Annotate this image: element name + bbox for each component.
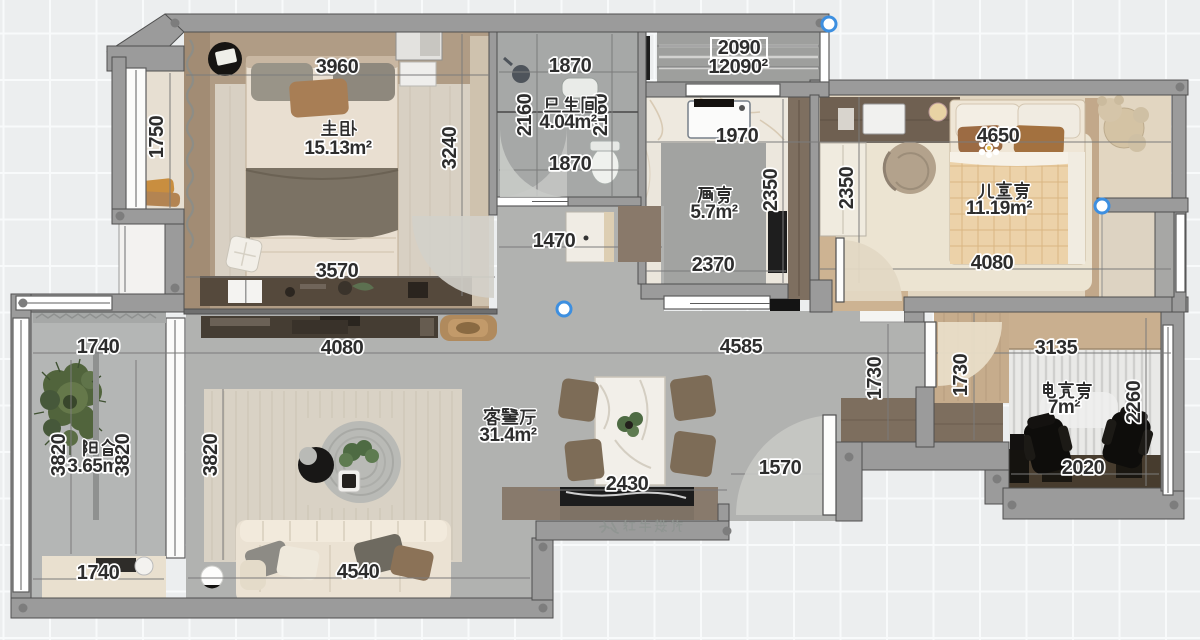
- svg-text:12090²: 12090²: [708, 56, 768, 78]
- svg-text:3570: 3570: [316, 260, 359, 282]
- svg-text:2020: 2020: [1062, 457, 1105, 479]
- svg-text:5.7m²: 5.7m²: [690, 202, 737, 223]
- svg-text:2260: 2260: [1123, 380, 1145, 423]
- svg-text:1740: 1740: [77, 562, 120, 584]
- svg-text:31.4m²: 31.4m²: [479, 425, 536, 446]
- svg-text:4080: 4080: [321, 337, 364, 359]
- svg-text:3135: 3135: [1035, 337, 1078, 359]
- svg-text:1730: 1730: [950, 353, 972, 396]
- svg-text:1870: 1870: [549, 55, 592, 77]
- svg-text:1740: 1740: [77, 336, 120, 358]
- svg-text:3960: 3960: [316, 56, 359, 78]
- svg-text:2430: 2430: [606, 473, 649, 495]
- svg-text:1870: 1870: [549, 153, 592, 175]
- svg-text:3240: 3240: [439, 126, 461, 169]
- svg-text:4080: 4080: [971, 252, 1014, 274]
- svg-text:1570: 1570: [759, 457, 802, 479]
- svg-text:1730: 1730: [864, 356, 886, 399]
- svg-text:4540: 4540: [337, 561, 380, 583]
- svg-text:2350: 2350: [760, 168, 782, 211]
- svg-text:4650: 4650: [977, 125, 1020, 147]
- svg-text:7m²: 7m²: [1048, 397, 1080, 418]
- svg-text:11.19m²: 11.19m²: [966, 198, 1032, 219]
- svg-text:1750: 1750: [146, 115, 168, 158]
- svg-text:3820: 3820: [200, 433, 222, 476]
- svg-text:2350: 2350: [836, 166, 858, 209]
- svg-text:2370: 2370: [692, 254, 735, 276]
- svg-text:1970: 1970: [716, 125, 759, 147]
- svg-text:4.04m²: 4.04m²: [539, 112, 596, 133]
- svg-text:1470: 1470: [533, 230, 576, 252]
- svg-text:3820: 3820: [112, 433, 134, 476]
- svg-text:2160: 2160: [514, 93, 536, 136]
- svg-text:4585: 4585: [720, 336, 763, 358]
- svg-text:15.13m²: 15.13m²: [304, 138, 371, 159]
